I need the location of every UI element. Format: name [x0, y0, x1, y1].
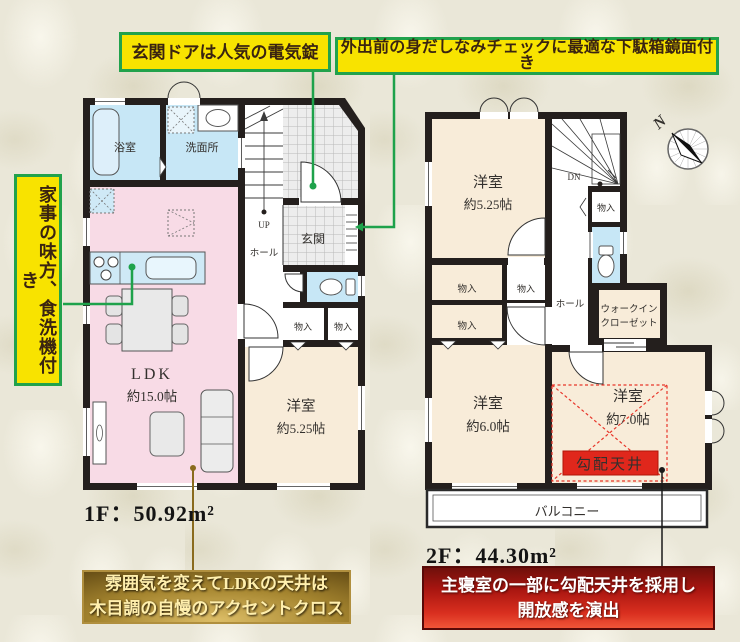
bedroom2f3-name-label: 洋室 [613, 388, 643, 405]
sloped-ceiling-tag-label: 勾配天井 [576, 456, 644, 473]
storage2f3-label: 物入 [457, 320, 477, 332]
bedroom2f3-size-label: 約7.0帖 [606, 412, 650, 427]
callout-entrance-door-text: 玄関ドアは人気の電気錠 [132, 44, 319, 61]
callout-shoebox-mirror: 外出前の身だしなみチェックに最適な下駄箱鏡面付き [335, 37, 719, 75]
floor-plan-canvas: 浴室 洗面所 玄関 UP ホール LDK 約15.0帖 洋室 約5.25帖 物入… [0, 0, 740, 642]
callout-sloped-ceiling-line2: 開放感を演出 [518, 598, 620, 624]
connector-dishwasher-dot [129, 264, 136, 271]
bedroom2f2-name-label: 洋室 [473, 395, 503, 412]
connector-shoebox [361, 74, 394, 227]
washroom-label: 洗面所 [186, 141, 219, 154]
connector-ldk-ceiling-dot [190, 465, 196, 471]
floor1-plan: 浴室 洗面所 玄関 UP ホール LDK 約15.0帖 洋室 約5.25帖 物入… [83, 82, 365, 490]
callout-shoebox-mirror-text: 外出前の身だしなみチェックに最適な下駄箱鏡面付き [338, 40, 716, 72]
wic-label-2: クローゼット [600, 317, 657, 329]
stairs-down-label: DN [568, 172, 581, 182]
callout-sloped-ceiling-line1: 主寝室の一部に勾配天井を採用し [441, 573, 696, 599]
bedroom1f-name-label: 洋室 [287, 398, 316, 415]
storage2f1-label: 物入 [457, 283, 477, 295]
toilet1-fixture [320, 279, 355, 295]
sloped-ceiling-tag: 勾配天井 [563, 451, 658, 475]
bedroom2f-2-room [432, 345, 545, 483]
wic-label-1: ウォークイン [600, 304, 657, 315]
bath-label: 浴室 [114, 140, 136, 154]
storage2f-stairs-label: 物入 [597, 202, 615, 213]
bedroom2f2-size-label: 約6.0帖 [466, 419, 510, 434]
ldk-size-label: 約15.0帖 [127, 389, 178, 404]
hall2-corridor [552, 186, 588, 345]
coffee-table [150, 412, 184, 456]
storage2f2-label: 物入 [517, 283, 535, 294]
compass: N [649, 112, 708, 169]
callout-ldk-ceiling-line2: 木目調の自慢のアクセントクロス [89, 597, 343, 622]
bedroom2f1-size-label: 約5.25帖 [464, 197, 513, 212]
callout-dishwasher: 家事の味方、食洗機付き [14, 174, 62, 386]
stairs-up-label: UP [258, 220, 270, 230]
tv-board [93, 402, 106, 464]
kitchen-counter [90, 252, 205, 284]
ldk-name-label: LDK [131, 366, 173, 383]
connector-sloped-ceiling-dot [659, 467, 665, 473]
floor-plan-flyer: 浴室 洗面所 玄関 UP ホール LDK 約15.0帖 洋室 約5.25帖 物入… [0, 0, 740, 642]
sofa [201, 390, 233, 472]
bedroom2f1-name-label: 洋室 [473, 174, 503, 191]
balcony: バルコニー [427, 490, 707, 527]
connector-entrance-door-dot [310, 183, 317, 190]
floor1-area-label: 1F：50.92m² [84, 496, 215, 528]
callout-dishwasher-text: 家事の味方、食洗機付き [20, 177, 56, 383]
compass-north-label: N [649, 112, 671, 134]
bedroom1f-size-label: 約5.25帖 [277, 421, 326, 436]
callout-ldk-ceiling-line1: 雰囲気を変えてLDKの天井は [105, 572, 328, 597]
vanity-sink [198, 105, 238, 131]
callout-entrance-door: 玄関ドアは人気の電気錠 [119, 32, 331, 72]
entrance-label: 玄関 [301, 231, 325, 246]
storage1-label: 物入 [294, 321, 312, 332]
washing-machine-space [168, 107, 194, 133]
toilet2-fixture [598, 246, 614, 277]
callout-sloped-ceiling: 主寝室の一部に勾配天井を採用し 開放感を演出 [422, 566, 715, 630]
storage2f-2-room [507, 265, 545, 300]
hall1-label: ホール [250, 248, 279, 259]
shoebox [345, 205, 358, 265]
refrigerator-space [90, 189, 114, 213]
floor2-area-label: 2F：44.30m² [426, 538, 557, 570]
balcony-label: バルコニー [535, 504, 600, 519]
hall2-label: ホール [556, 299, 585, 310]
storage2-label: 物入 [334, 321, 352, 332]
callout-ldk-ceiling: 雰囲気を変えてLDKの天井は 木目調の自慢のアクセントクロス [82, 570, 351, 624]
